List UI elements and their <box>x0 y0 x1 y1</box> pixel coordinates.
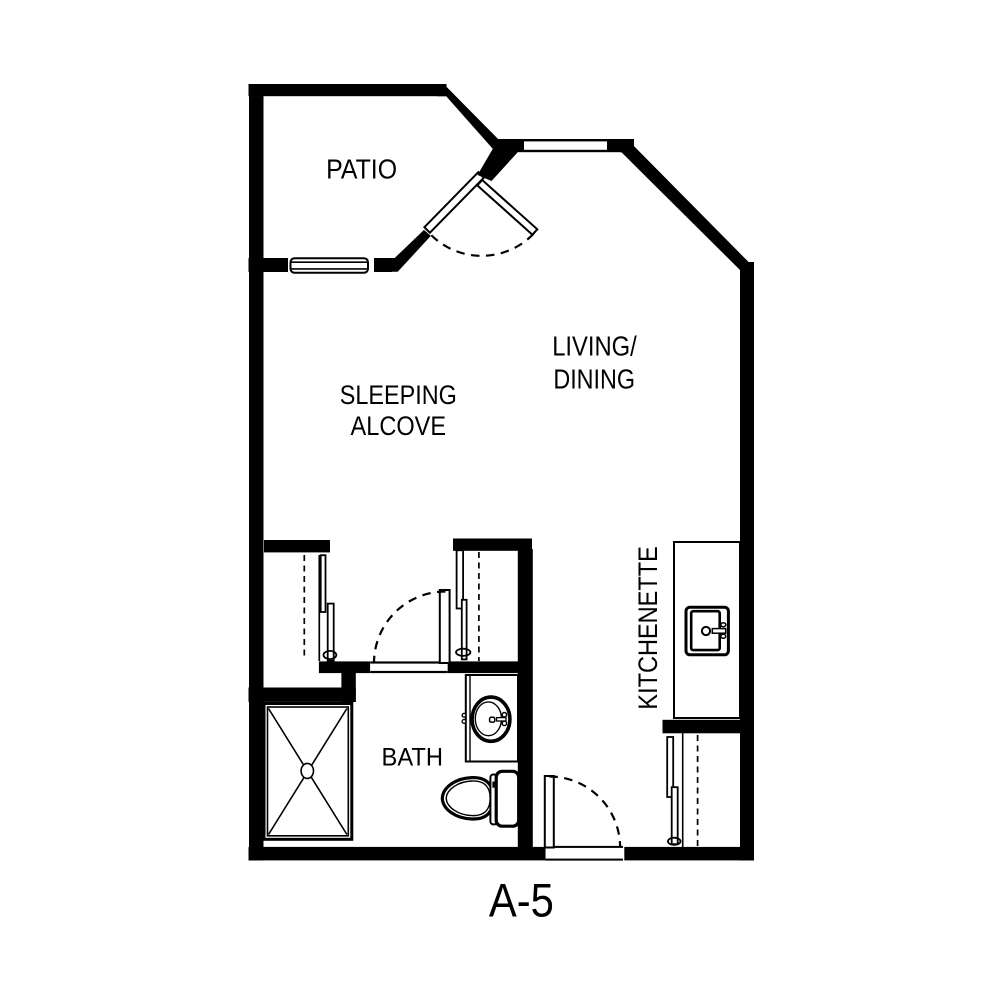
svg-text:KITCHENETTE: KITCHENETTE <box>633 546 663 709</box>
svg-text:SLEEPING: SLEEPING <box>340 380 457 410</box>
svg-text:DINING: DINING <box>553 363 635 394</box>
svg-text:PATIO: PATIO <box>326 154 397 185</box>
svg-text:A-5: A-5 <box>489 874 554 927</box>
svg-text:BATH: BATH <box>382 744 444 772</box>
svg-text:ALCOVE: ALCOVE <box>351 411 447 441</box>
svg-text:LIVING/: LIVING/ <box>552 331 637 362</box>
